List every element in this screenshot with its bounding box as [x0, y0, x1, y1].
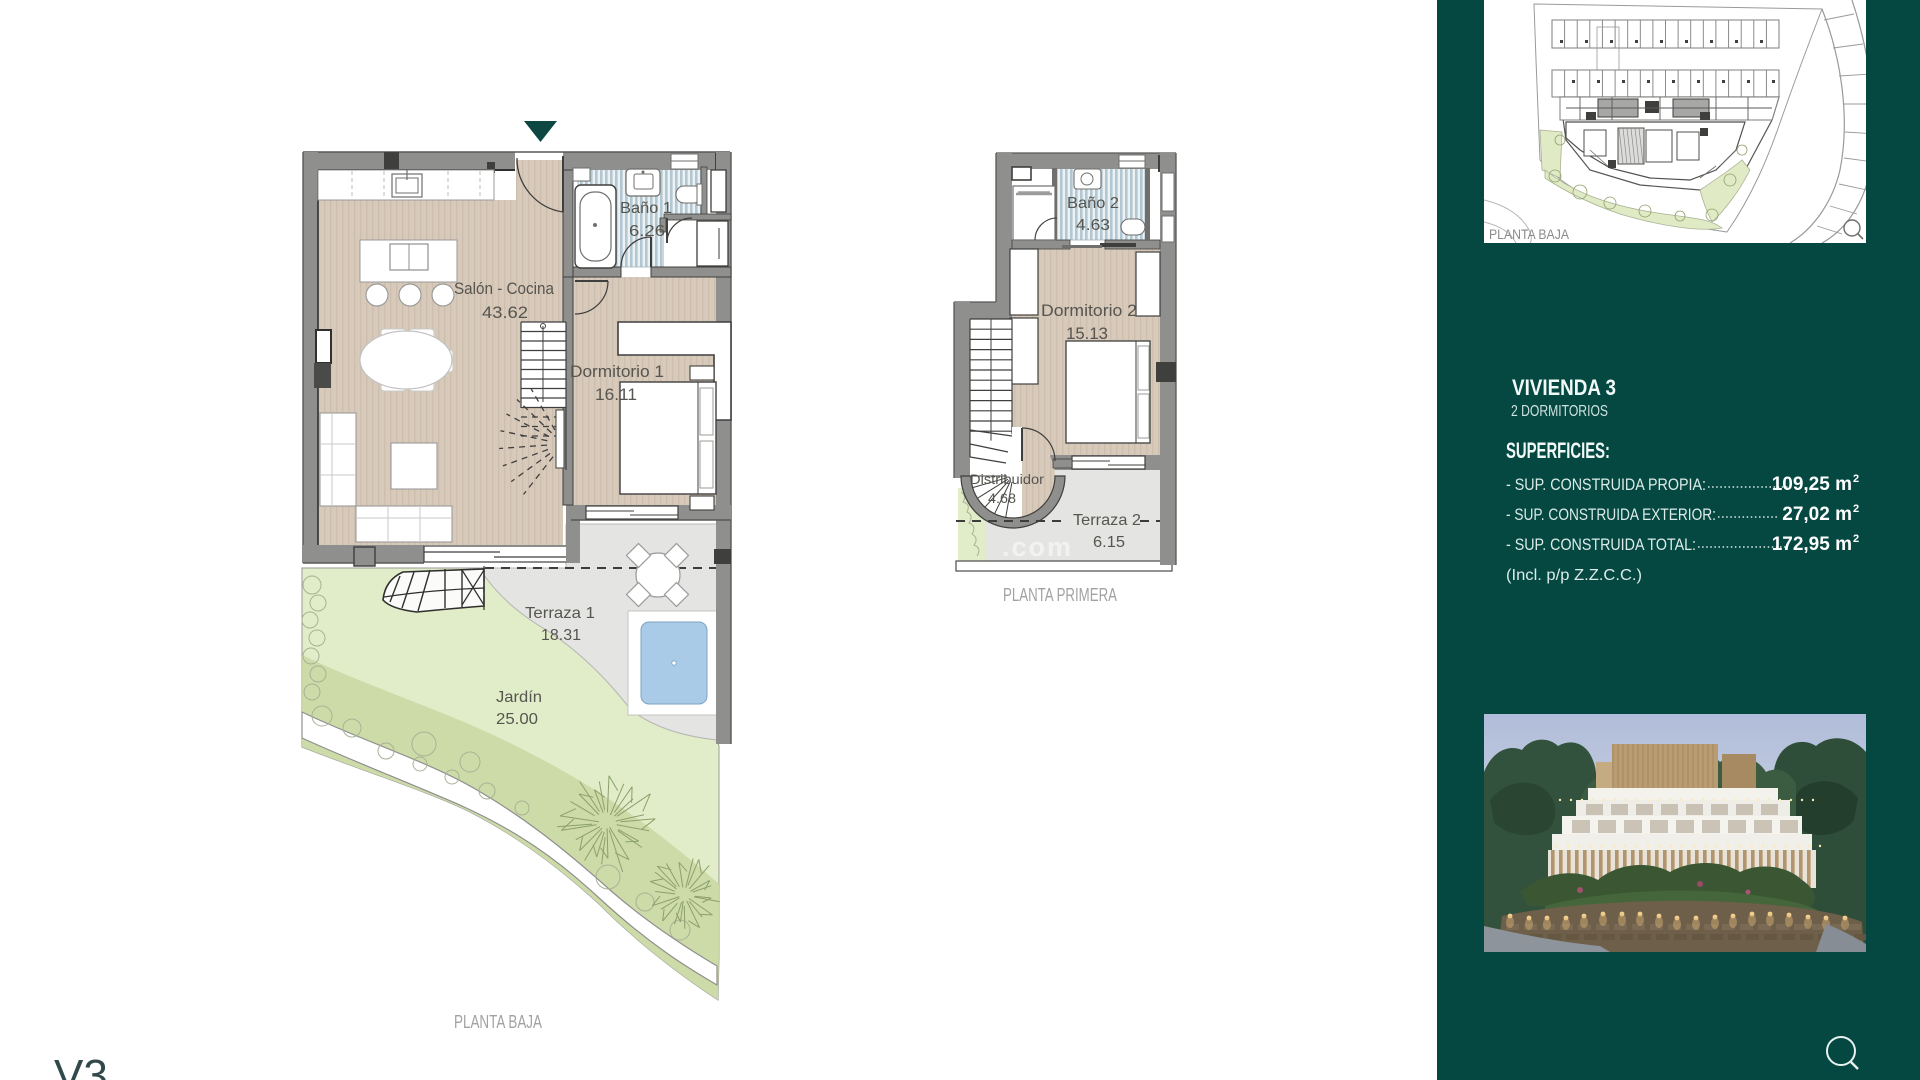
svg-text:- SUP. CONSTRUIDA PROPIA:: - SUP. CONSTRUIDA PROPIA: [1506, 475, 1706, 494]
svg-text:6.26: 6.26 [629, 223, 665, 240]
svg-text:PLANTA BAJA: PLANTA BAJA [1489, 226, 1570, 242]
svg-text:- SUP. CONSTRUIDA EXTERIOR:: - SUP. CONSTRUIDA EXTERIOR: [1506, 505, 1716, 524]
svg-text:Salón - Cocina: Salón - Cocina [454, 279, 554, 298]
svg-text:Dormitorio 2: Dormitorio 2 [1041, 301, 1137, 320]
svg-text:27,02 m: 27,02 m [1782, 504, 1852, 525]
svg-text:(Incl. p/p Z.Z.C.C.): (Incl. p/p Z.Z.C.C.) [1506, 567, 1642, 584]
svg-text:Distribuidor: Distribuidor [970, 471, 1044, 487]
svg-text:2: 2 [1853, 533, 1859, 545]
svg-text:VIVIENDA 3: VIVIENDA 3 [1512, 375, 1616, 400]
svg-text:Terraza 1: Terraza 1 [525, 605, 595, 622]
svg-text:16.11: 16.11 [595, 385, 637, 404]
svg-text:43.62: 43.62 [482, 303, 528, 322]
svg-text:PLANTA BAJA: PLANTA BAJA [454, 1012, 542, 1032]
svg-text:18.31: 18.31 [541, 627, 581, 644]
svg-text:2 DORMITORIOS: 2 DORMITORIOS [1511, 403, 1608, 420]
svg-text:4.63: 4.63 [1076, 217, 1110, 234]
svg-text:V3: V3 [54, 1051, 108, 1080]
svg-text:25.00: 25.00 [496, 711, 538, 728]
svg-text:Terraza 2: Terraza 2 [1073, 512, 1141, 529]
svg-text:15.13: 15.13 [1066, 324, 1108, 343]
svg-text:SUPERFICIES:: SUPERFICIES: [1506, 438, 1610, 463]
svg-text:PLANTA PRIMERA: PLANTA PRIMERA [1003, 585, 1117, 605]
svg-text:172,95 m: 172,95 m [1772, 534, 1852, 555]
svg-text:Baño 2: Baño 2 [1067, 195, 1119, 212]
svg-text:.com: .com [1002, 532, 1073, 562]
svg-text:2: 2 [1853, 503, 1859, 515]
svg-text:4.68: 4.68 [988, 490, 1016, 506]
svg-text:109,25 m: 109,25 m [1772, 474, 1852, 495]
svg-text:Jardín: Jardín [496, 689, 542, 706]
svg-text:Baño 1: Baño 1 [620, 200, 672, 217]
svg-text:2: 2 [1853, 473, 1859, 485]
svg-text:Dormitorio 1: Dormitorio 1 [570, 362, 664, 381]
svg-text:- SUP. CONSTRUIDA TOTAL:: - SUP. CONSTRUIDA TOTAL: [1506, 535, 1696, 554]
svg-text:6.15: 6.15 [1093, 534, 1125, 551]
